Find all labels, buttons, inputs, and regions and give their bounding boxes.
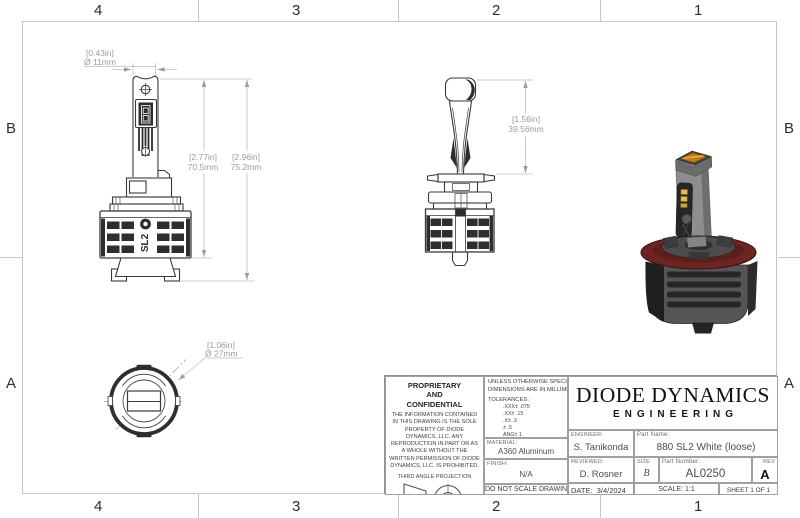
sheet-value: SHEET 1 OF 1: [720, 487, 777, 494]
tolerance-line: .X± .3: [503, 418, 567, 425]
dim-dia-mm: Ø 27mm: [205, 349, 238, 359]
heatsink-logo-text: SL2: [140, 233, 151, 252]
units-text: DIMENSIONS ARE IN MILLIMETERS: [488, 387, 567, 395]
engineer-value: S. Tanikonda: [569, 442, 633, 453]
reviewed-value: D. Rosner: [569, 469, 633, 480]
dim-total-in: [2.96in]: [232, 152, 260, 162]
unless-otherwise-text: UNLESS OTHERWISE SPECIFIED:: [488, 379, 567, 387]
engineer-label: ENGINEER:: [571, 432, 603, 438]
company-name: DIODE DYNAMICS: [569, 383, 777, 408]
front-view: SL2 [0.43in] Ø 11mm [2.77in] 70.5mm [2.9…: [84, 48, 266, 281]
material-value: A360 Aluminum: [485, 447, 567, 456]
finish-cell: FINISH: N/A: [484, 459, 568, 484]
dim-width-mm: Ø 11mm: [84, 57, 116, 67]
do-not-scale-cell: DO NOT SCALE DRAWING: [484, 484, 568, 495]
do-not-scale-text: DO NOT SCALE DRAWING: [485, 486, 567, 493]
dim-height-mm: 39.56mm: [508, 124, 543, 134]
company-division: ENGINEERING: [569, 409, 777, 420]
part-number-label: Part Number:: [662, 459, 700, 465]
tolerance-line: .XX± .15: [503, 411, 567, 418]
dim-body-mm: 70.5mm: [188, 162, 219, 172]
date-label: DATE:: [571, 486, 593, 495]
rendered-view: [641, 151, 758, 334]
dim-body-in: [2.77in]: [189, 152, 217, 162]
third-angle-projection-label: THIRD ANGLE PROJECTION: [386, 474, 483, 480]
reviewed-cell: REVIEWED: D. Rosner: [568, 457, 634, 483]
third-angle-projection-icon: [400, 481, 470, 495]
material-cell: MATERIAL: A360 Aluminum: [484, 438, 568, 459]
side-view: [1.56in] 39.56mm: [426, 78, 549, 266]
part-number-cell: Part Number: AL0250: [659, 457, 752, 483]
side-part-outline: [426, 78, 495, 266]
rev-label: REV: [763, 459, 775, 465]
proprietary-heading-1: PROPRIETARY: [386, 381, 483, 390]
size-cell: SIZE B: [634, 457, 659, 483]
part-name-label: Part Name:: [637, 432, 669, 438]
date-cell: DATE: 3/4/2024: [568, 483, 634, 495]
proprietary-body: THE INFORMATION CONTAINED IN THIS DRAWIN…: [389, 412, 480, 470]
scale-value: SCALE: 1:1: [635, 486, 718, 493]
title-block: PROPRIETARY AND CONFIDENTIAL THE INFORMA…: [384, 375, 777, 494]
tolerances-label: TOLERANCES:: [488, 397, 567, 405]
part-number-value: AL0250: [660, 468, 751, 480]
bottom-view: [1.06in] Ø 27mm: [104, 340, 243, 437]
rev-cell: REV A: [752, 457, 778, 483]
scale-cell: SCALE: 1:1: [634, 483, 719, 495]
reviewed-label: REVIEWED:: [571, 459, 604, 465]
sheet-cell: SHEET 1 OF 1: [719, 483, 778, 495]
tolerances-cell: UNLESS OTHERWISE SPECIFIED: DIMENSIONS A…: [484, 376, 568, 438]
bottom-dim-labels: [1.06in] Ø 27mm: [205, 340, 238, 359]
material-label: MATERIAL:: [487, 440, 517, 446]
side-dim-labels: [1.56in] 39.56mm: [504, 114, 548, 137]
bottom-dim-lines: [179, 358, 244, 380]
drawing-sheet: 4 3 2 1 4 3 2 1 B A B A: [0, 0, 800, 518]
part-name-cell: Part Name: 880 SL2 White (loose): [634, 430, 778, 457]
dim-height-in: [1.56in]: [512, 114, 540, 124]
size-label: SIZE: [637, 459, 650, 465]
tolerance-line: ± .5: [503, 425, 567, 432]
finish-label: FINISH:: [487, 461, 508, 467]
proprietary-heading-3: CONFIDENTIAL: [386, 400, 483, 409]
rev-value: A: [753, 467, 777, 482]
part-name-value: 880 SL2 White (loose): [635, 442, 777, 453]
proprietary-heading-2: AND: [386, 390, 483, 399]
front-dim-labels: [0.43in] Ø 11mm [2.77in] 70.5mm [2.96in]…: [84, 48, 266, 173]
date-value: 3/4/2024: [597, 486, 626, 495]
finish-value: N/A: [485, 470, 567, 479]
proprietary-cell: PROPRIETARY AND CONFIDENTIAL THE INFORMA…: [385, 376, 484, 495]
dim-total-mm: 75.2mm: [231, 162, 262, 172]
engineer-cell: ENGINEER: S. Tanikonda: [568, 430, 634, 457]
led-recess: [676, 183, 693, 237]
company-logo-cell: DIODE DYNAMICS ENGINEERING: [568, 376, 778, 430]
tolerance-line: .XXX± .075: [503, 404, 567, 411]
size-value: B: [635, 468, 658, 479]
